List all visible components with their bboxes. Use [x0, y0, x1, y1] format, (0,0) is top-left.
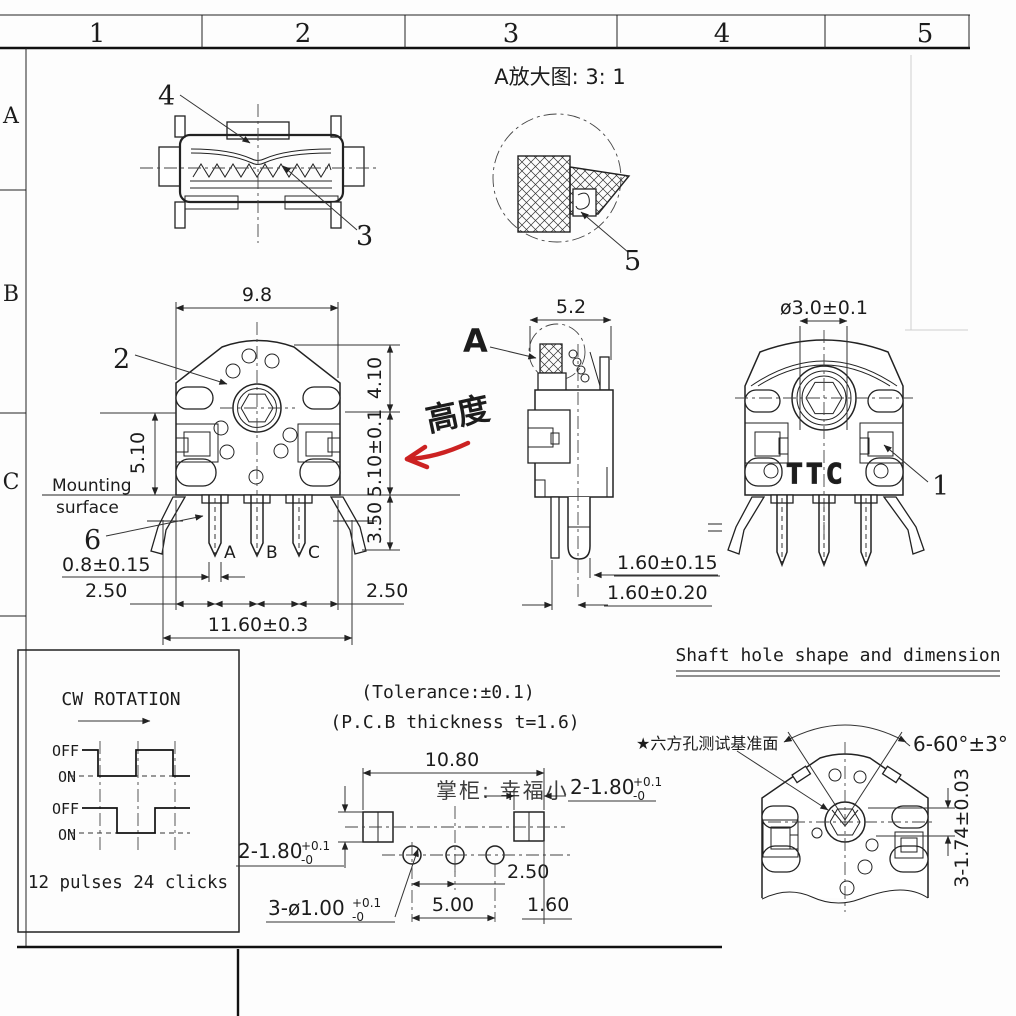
post — [331, 116, 341, 137]
side-slot — [528, 410, 570, 463]
clip-slot — [866, 458, 903, 486]
dim-h1: 4.10 — [364, 357, 386, 399]
waveform-title: CW ROTATION — [61, 689, 180, 710]
clip-slot — [300, 459, 340, 486]
side-leg — [551, 497, 559, 558]
callout-5: 5 — [624, 246, 641, 277]
side-view: 5.2 A 1.60±0.15 1.60±0.20 — [463, 296, 720, 610]
wheel-section — [540, 344, 562, 373]
post — [175, 116, 185, 137]
waveform-panel: CW ROTATION OFF ON OFF ON 12 pulses 24 c… — [18, 650, 239, 932]
pin-label-b: B — [266, 543, 278, 563]
dim-side-width: 5.2 — [556, 296, 586, 318]
detail-title: A放大图: 3: 1 — [494, 65, 626, 89]
clip-slot — [745, 458, 782, 486]
tol-plus: +0.1 — [352, 896, 381, 910]
hatched-wheel — [518, 156, 570, 232]
datum-note: ★六方孔测试基准面 — [636, 734, 778, 753]
callout-3: 3 — [356, 221, 373, 252]
detent-teeth — [193, 164, 331, 177]
dim-h2: 5.10±0.1 — [364, 409, 386, 497]
front-view: Mounting surface A B C 2 6 9.8 4.10 5.10… — [42, 284, 460, 645]
shaft-hole-view: 6-60°±3° ★六方孔测试基准面 3-1.74±0.03 — [636, 725, 1008, 912]
clip-slot — [892, 806, 928, 828]
dim-hex-angle: 6-60°±3° — [913, 732, 1008, 756]
height-annotation: 高度 — [407, 389, 493, 467]
clip-slot — [890, 846, 928, 872]
col-label-2: 2 — [295, 19, 312, 49]
dim-pad-left: 2-1.80 — [238, 839, 302, 863]
dim-hex-flats: 3-1.74±0.03 — [951, 768, 973, 887]
pulse-caption: 12 pulses 24 clicks — [28, 873, 228, 893]
dim-pad-span: 10.80 — [425, 749, 479, 771]
col-label-4: 4 — [714, 19, 731, 49]
section-heading: Shaft hole shape and dimension — [675, 645, 1000, 666]
dim-pad-right: 2-1.80 — [570, 775, 634, 799]
side-pin — [568, 497, 590, 559]
ttc-logo: TTC — [786, 457, 846, 490]
off-label-2: OFF — [52, 800, 79, 818]
mounting-label-2: surface — [56, 498, 119, 518]
dim-pitch-right: 2.50 — [366, 580, 408, 602]
col-label-5: 5 — [917, 19, 934, 49]
callout-6: 6 — [84, 525, 101, 556]
clip-slot — [762, 806, 798, 828]
clip-slot — [762, 846, 800, 872]
dim-pitch-left: 2.50 — [85, 580, 127, 602]
height-text: 高度 — [422, 389, 493, 439]
dim-left-height: 5.10 — [127, 432, 149, 474]
bent-leg — [331, 497, 366, 554]
row-label-a: A — [2, 104, 20, 129]
bent-leg — [728, 497, 764, 554]
channel-a-trace — [82, 750, 190, 776]
dim-h3: 3.50 — [364, 502, 386, 544]
mounting-label-1: Mounting — [52, 476, 132, 496]
on-label-1: ON — [58, 768, 76, 786]
row-label-c: C — [3, 470, 20, 495]
detail-view-a: A放大图: 3: 1 5 — [493, 65, 641, 277]
on-label-2: ON — [58, 826, 76, 844]
leg — [175, 202, 185, 228]
dim-pad-offset: 1.60 — [527, 894, 569, 916]
encoder-housing — [180, 135, 343, 202]
pin-label-c: C — [308, 543, 320, 563]
channel-b-trace — [82, 808, 190, 833]
section-view: 4 3 — [140, 81, 380, 252]
dim-front-width: 9.8 — [242, 284, 272, 306]
dim-holes: 3-ø1.00 — [268, 896, 345, 920]
clip-slot — [176, 387, 213, 409]
bent-leg — [884, 497, 924, 554]
dim-leg-offset: 1.60±0.20 — [607, 582, 708, 604]
detail-a-label: A — [463, 322, 488, 360]
pcb-thickness-note: (P.C.B thickness t=1.6) — [330, 712, 579, 733]
side-tab — [343, 147, 364, 186]
callout-4: 4 — [158, 81, 175, 112]
off-label-1: OFF — [52, 742, 79, 760]
rear-view: TTC ø3.0±0.1 1 — [708, 297, 949, 568]
bearing-block — [538, 373, 566, 392]
pin-label-a: A — [224, 543, 236, 563]
clip-slot — [745, 390, 780, 412]
callout-1: 1 — [932, 471, 949, 502]
col-label-1: 1 — [89, 19, 106, 49]
dim-hole-span: 5.00 — [432, 894, 474, 916]
dim-pin-dia: 1.60±0.15 — [617, 552, 718, 574]
side-tab — [159, 147, 180, 186]
rear-tab — [600, 357, 609, 390]
dim-hole-pitch: 2.50 — [507, 861, 549, 883]
drawing-canvas: 1 2 3 4 5 A B C 4 3 A放大图: 3: 1 — [0, 0, 1016, 1016]
callout-2: 2 — [113, 344, 130, 375]
shaft-hole-heading: Shaft hole shape and dimension — [675, 645, 1000, 676]
notes: (Tolerance:±0.1) (P.C.B thickness t=1.6) — [330, 682, 579, 733]
row-label-b: B — [3, 282, 19, 307]
dim-overall-width: 11.60±0.3 — [208, 614, 309, 636]
tol-minus: -0 — [301, 853, 313, 867]
tol-plus: +0.1 — [633, 775, 662, 789]
drawing-sheet: 1 2 3 4 5 A B C 4 3 A放大图: 3: 1 — [0, 0, 1016, 1016]
watermark-text: 掌柜: 幸福小 — [436, 779, 569, 803]
clip-slot — [868, 390, 903, 412]
tolerance-note: (Tolerance:±0.1) — [361, 682, 534, 703]
dim-shaft-dia: ø3.0±0.1 — [780, 297, 868, 319]
col-label-3: 3 — [503, 19, 520, 49]
clip-slot — [303, 387, 340, 409]
tol-plus: +0.1 — [301, 839, 330, 853]
dim-pin-width: 0.8±0.15 — [62, 554, 150, 576]
pcb-footprint-view: 10.80 2-1.80 +0.1 -0 2-1.80 +0.1 -0 3-ø1… — [236, 749, 662, 924]
clip-slot — [176, 459, 216, 486]
